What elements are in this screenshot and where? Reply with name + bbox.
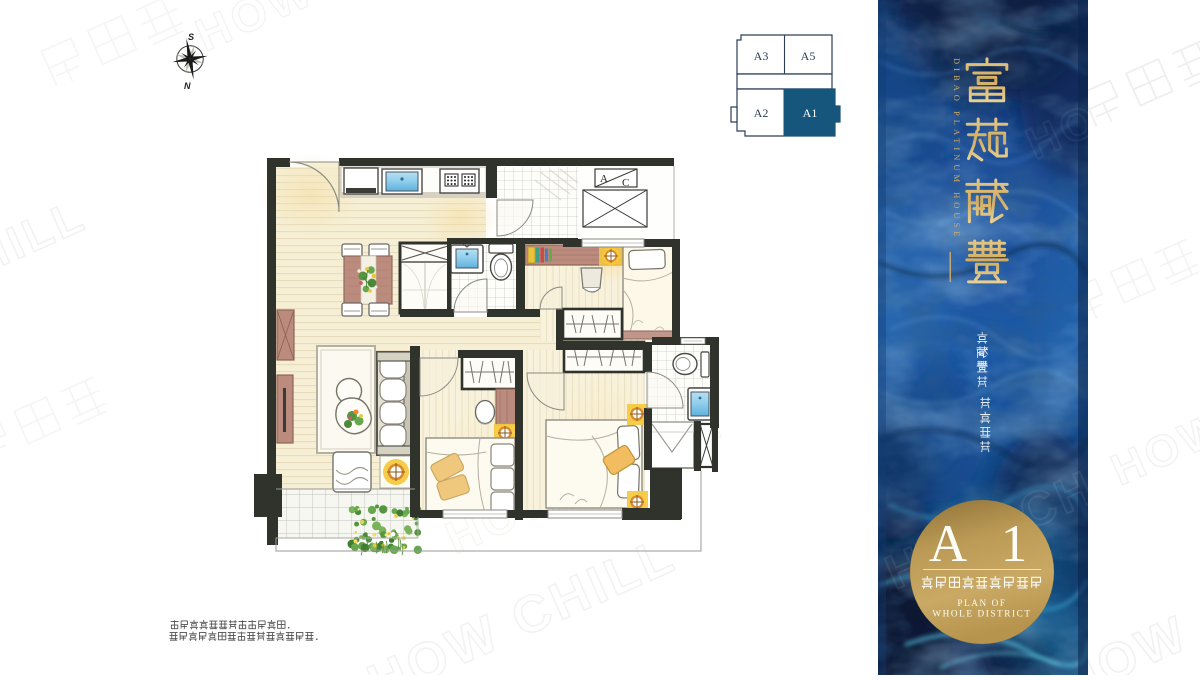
svg-text:HOW CHILL: HOW CHILL bbox=[1104, 334, 1200, 495]
svg-text:DIBAO PLATINUM HOUSE: DIBAO PLATINUM HOUSE bbox=[952, 58, 962, 240]
svg-text:1: 1 bbox=[1001, 515, 1028, 573]
svg-text:WHOLE DISTRICT: WHOLE DISTRICT bbox=[932, 609, 1031, 619]
svg-text:CHILL: CHILL bbox=[0, 188, 94, 299]
svg-text:A: A bbox=[929, 515, 967, 573]
svg-text:A1: A1 bbox=[803, 106, 818, 120]
svg-text:N: N bbox=[184, 81, 191, 91]
svg-text:A3: A3 bbox=[754, 49, 769, 63]
svg-text:C: C bbox=[622, 177, 629, 189]
svg-text:S: S bbox=[188, 32, 194, 42]
svg-text:A5: A5 bbox=[801, 49, 816, 63]
svg-text:HOW CHILL: HOW CHILL bbox=[359, 526, 685, 675]
svg-text:HOW CHILL: HOW CHILL bbox=[188, 0, 480, 61]
svg-text:A: A bbox=[600, 173, 608, 185]
svg-text:PLAN OF: PLAN OF bbox=[957, 598, 1006, 608]
svg-text:A2: A2 bbox=[754, 106, 769, 120]
